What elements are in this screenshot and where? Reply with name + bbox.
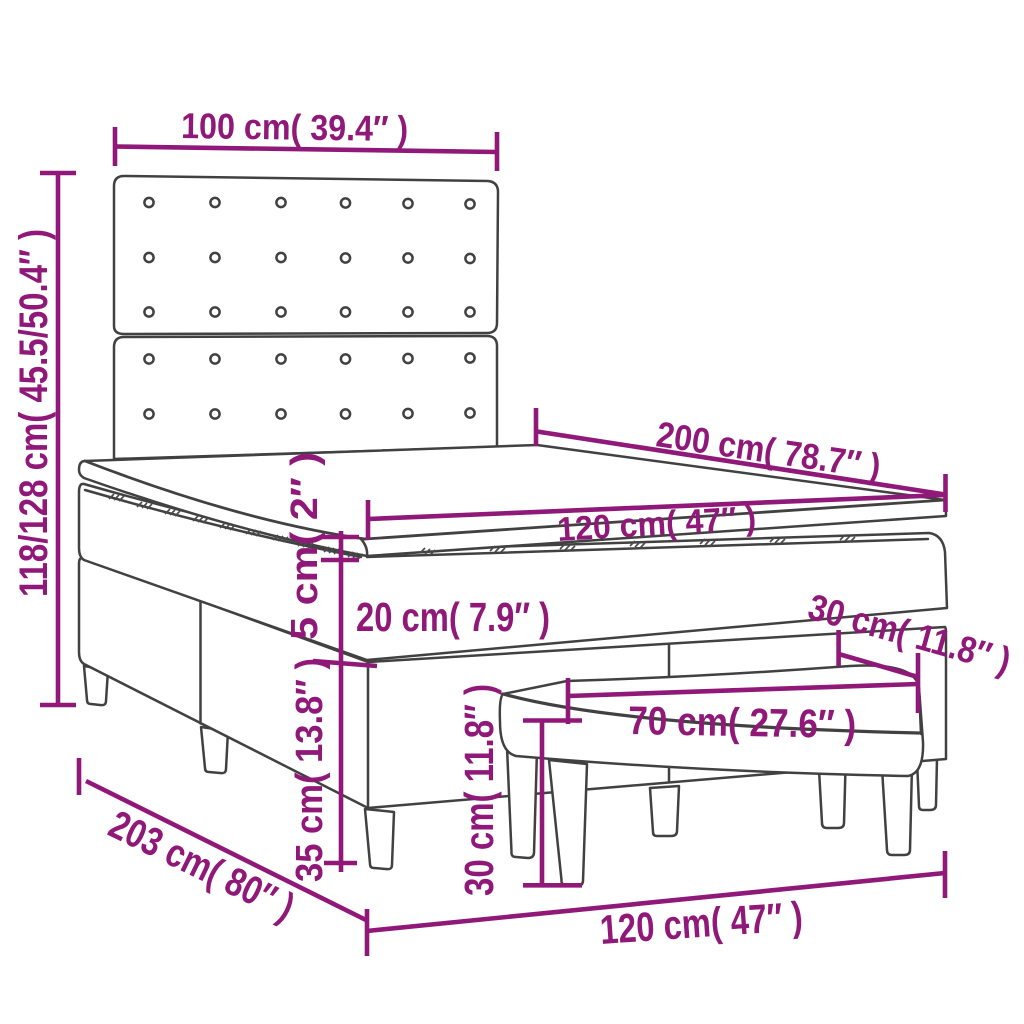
svg-text:20 cm( 7.9″ ): 20 cm( 7.9″ ) [356, 594, 550, 640]
svg-text:30 cm( 11.8″ ): 30 cm( 11.8″ ) [456, 684, 502, 896]
svg-text:70 cm( 27.6″ ): 70 cm( 27.6″ ) [628, 699, 857, 747]
svg-text:5 cm( 2″ ): 5 cm( 2″ ) [284, 452, 326, 640]
svg-text:35 cm( 13.8″ ): 35 cm( 13.8″ ) [289, 658, 331, 882]
svg-text:118/128 cm( 45.5/50.4″ ): 118/128 cm( 45.5/50.4″ ) [12, 229, 56, 597]
svg-text:100 cm( 39.4″ ): 100 cm( 39.4″ ) [181, 105, 409, 149]
